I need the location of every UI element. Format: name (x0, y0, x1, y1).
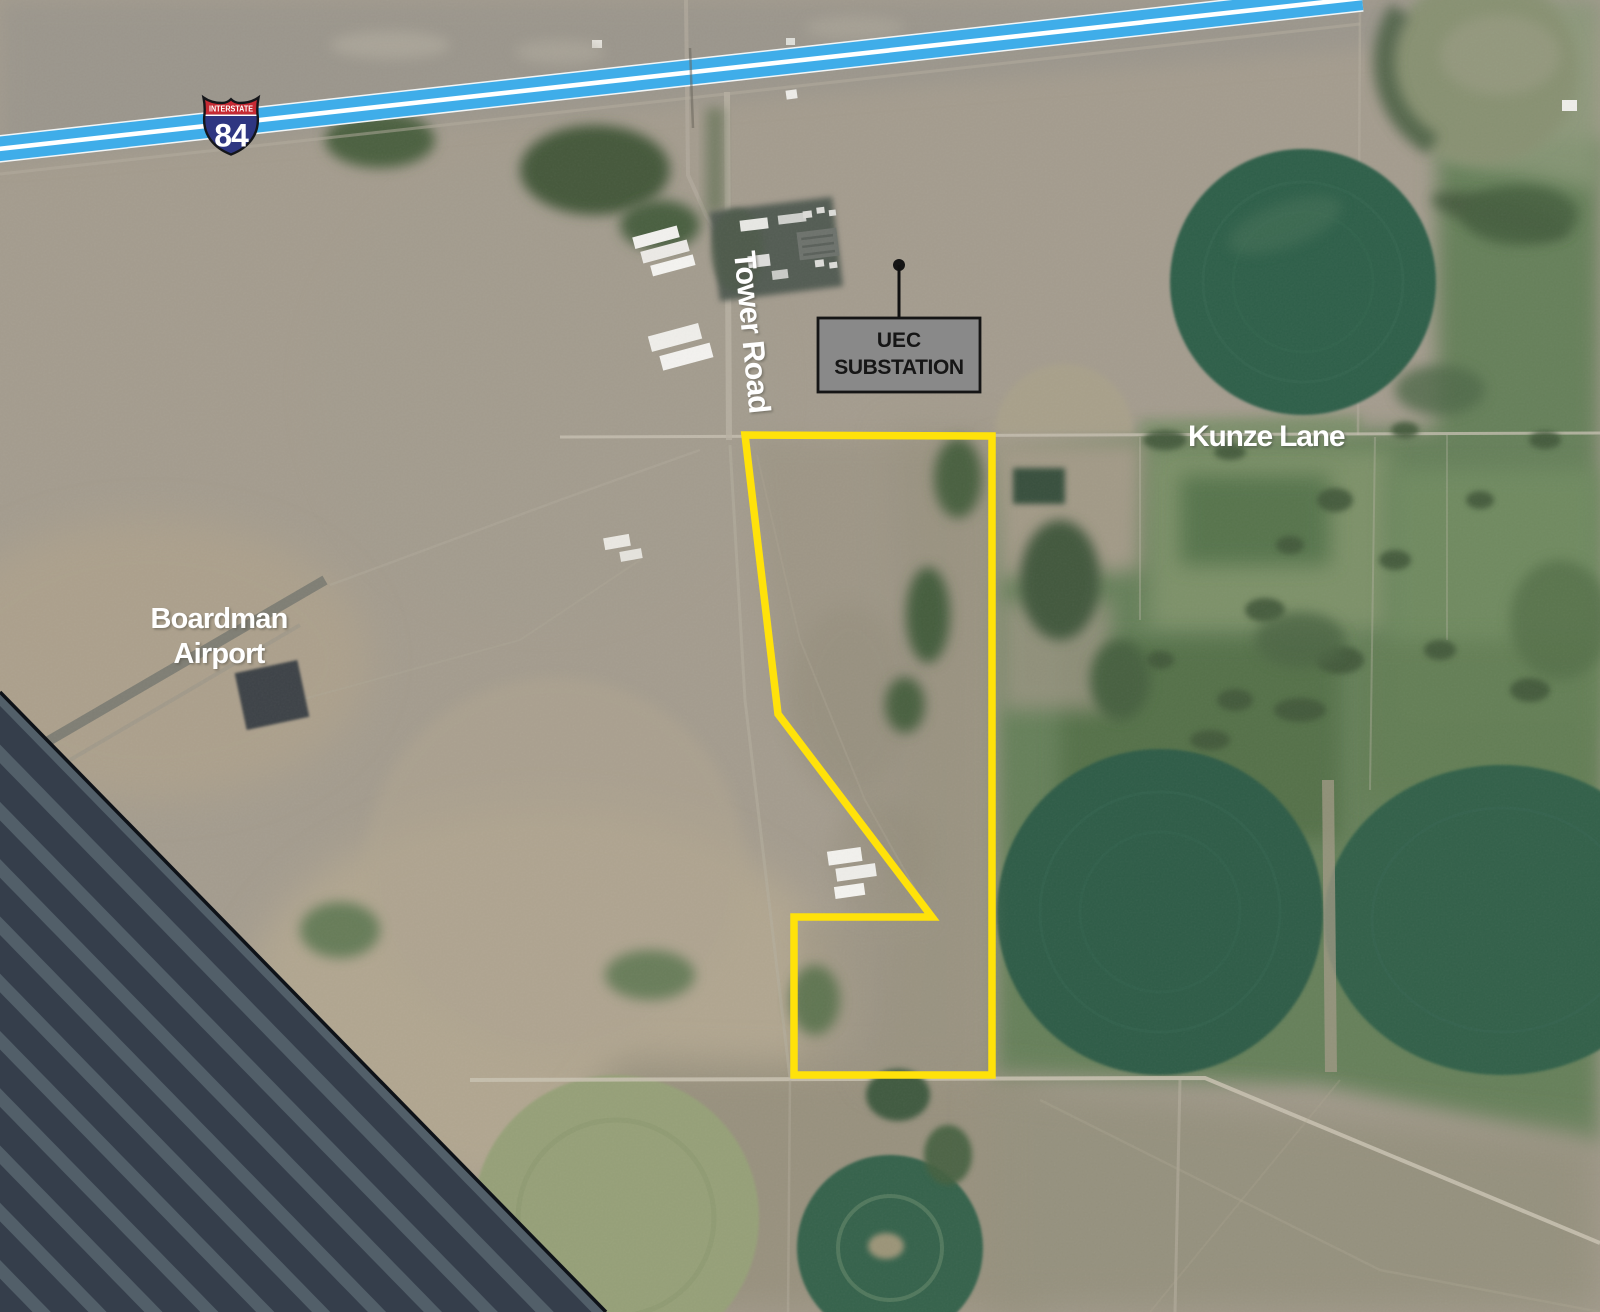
svg-text:Boardman: Boardman (150, 603, 287, 635)
svg-text:Airport: Airport (173, 638, 265, 670)
svg-text:UEC: UEC (877, 329, 921, 352)
svg-text:Kunze Lane: Kunze Lane (1188, 420, 1345, 453)
svg-text:SUBSTATION: SUBSTATION (834, 356, 963, 379)
svg-text:INTERSTATE: INTERSTATE (209, 105, 254, 114)
svg-text:84: 84 (214, 118, 249, 154)
